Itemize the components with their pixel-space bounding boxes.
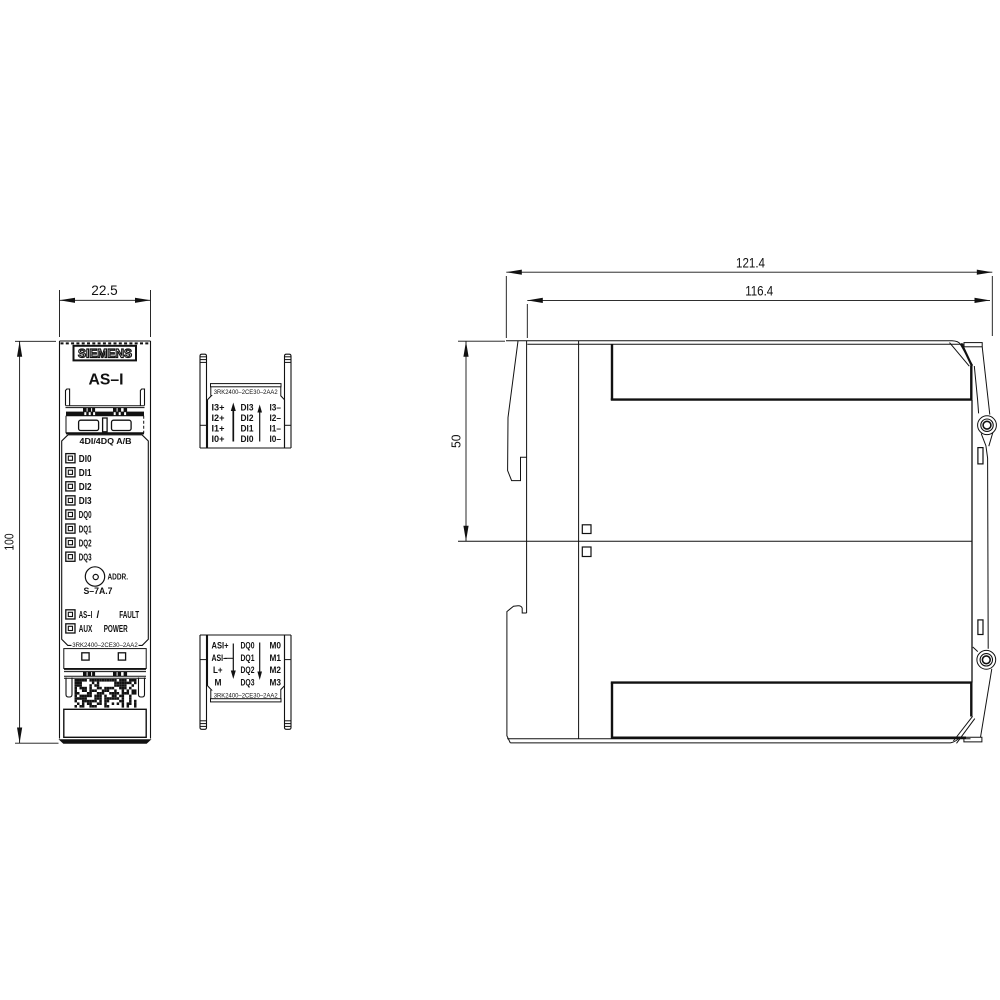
svg-text:AUX: AUX: [79, 624, 93, 635]
svg-text:116.4: 116.4: [745, 282, 773, 298]
svg-text:DQ0: DQ0: [79, 510, 92, 521]
svg-text:ADDR.: ADDR.: [108, 572, 129, 581]
svg-text:4DI/4DQ A/B: 4DI/4DQ A/B: [80, 436, 132, 446]
svg-text:3RK2400–2CE30–2AA2: 3RK2400–2CE30–2AA2: [214, 389, 278, 396]
svg-text:DI2: DI2: [79, 482, 92, 493]
svg-text:M2: M2: [270, 665, 282, 675]
svg-text:M: M: [215, 677, 222, 687]
svg-text:I3–: I3–: [270, 402, 282, 412]
svg-text:DQ2: DQ2: [241, 665, 255, 675]
svg-text:DI0: DI0: [241, 434, 254, 444]
svg-text:SIEMENS: SIEMENS: [78, 347, 132, 361]
svg-text:DI3: DI3: [79, 496, 92, 507]
svg-text:ASI+: ASI+: [212, 641, 229, 651]
svg-text:DQ0: DQ0: [241, 641, 255, 651]
svg-text:50: 50: [450, 435, 464, 449]
svg-text:L+: L+: [213, 665, 223, 675]
svg-text:I3+: I3+: [212, 402, 225, 412]
svg-text:100: 100: [3, 533, 17, 550]
svg-text:I1–: I1–: [270, 423, 282, 433]
svg-text:DI1: DI1: [241, 423, 254, 433]
svg-text:/: /: [97, 610, 100, 621]
svg-text:M3: M3: [270, 677, 282, 687]
svg-text:FAULT: FAULT: [119, 610, 139, 621]
svg-text:I0+: I0+: [212, 434, 225, 444]
svg-text:I0–: I0–: [270, 434, 282, 444]
svg-text:I2+: I2+: [212, 413, 225, 423]
svg-text:DI0: DI0: [79, 454, 92, 465]
svg-text:22.5: 22.5: [91, 283, 118, 298]
svg-text:DQ3: DQ3: [79, 552, 92, 563]
svg-text:DI1: DI1: [79, 468, 92, 479]
svg-text:DI3: DI3: [241, 402, 254, 412]
svg-text:M1: M1: [270, 653, 282, 663]
svg-text:DQ1: DQ1: [79, 524, 92, 535]
svg-text:AS–I: AS–I: [89, 372, 124, 389]
svg-text:DQ2: DQ2: [79, 538, 92, 549]
svg-text:121.4: 121.4: [736, 254, 765, 270]
svg-text:DQ3: DQ3: [241, 677, 255, 687]
svg-text:S–7A.7: S–7A.7: [84, 586, 113, 596]
svg-text:DI2: DI2: [241, 413, 254, 423]
svg-text:I2–: I2–: [270, 413, 282, 423]
svg-text:M0: M0: [270, 641, 282, 651]
svg-text:I1+: I1+: [212, 423, 225, 433]
svg-text:DQ1: DQ1: [241, 653, 255, 663]
svg-text:POWER: POWER: [104, 624, 128, 635]
svg-text:3RK2400–2CE30–2AA2: 3RK2400–2CE30–2AA2: [72, 642, 138, 649]
svg-text:AS–I: AS–I: [79, 610, 93, 621]
